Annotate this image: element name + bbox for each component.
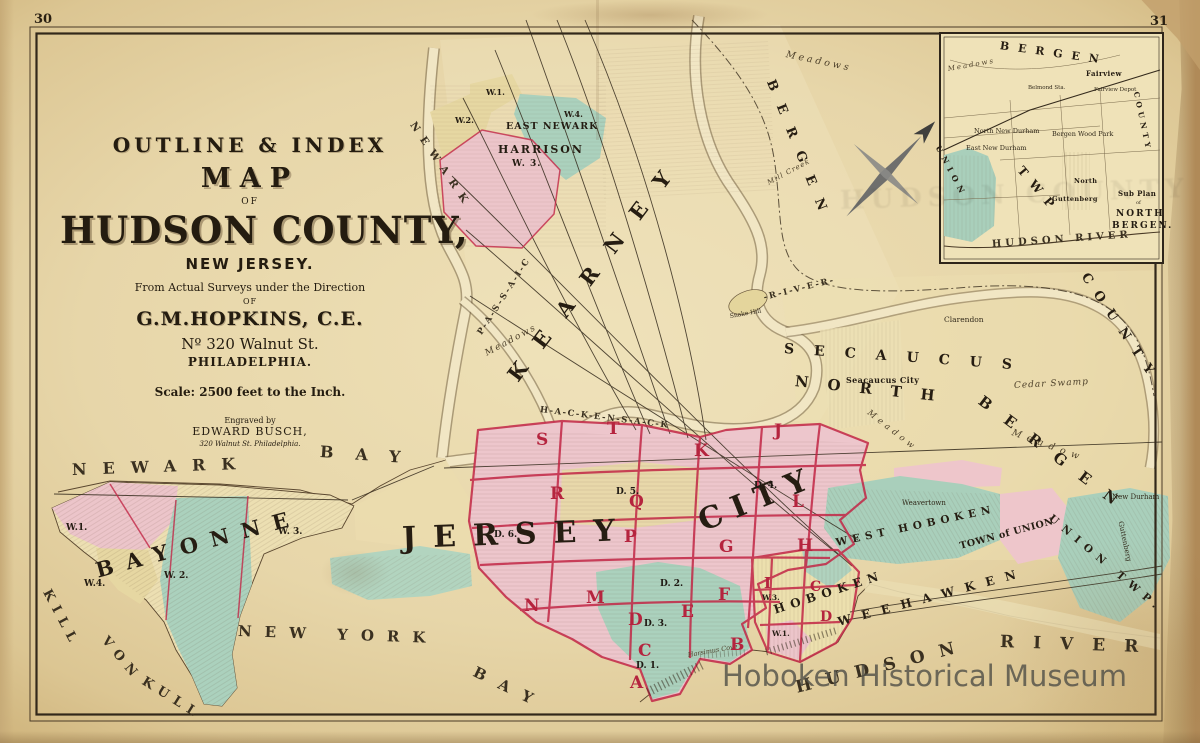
label-snake-hill: Snake Hill xyxy=(729,309,761,320)
label-clarendon: Clarendon xyxy=(944,316,984,324)
inset-meadows: Meadows xyxy=(947,58,995,73)
label-east-newark: EAST NEWARK xyxy=(506,122,598,132)
label-meadows-top: Meadows xyxy=(785,50,852,73)
district-s: S xyxy=(536,432,548,449)
district-j: J xyxy=(774,423,782,440)
label-bayonne-w1: W.1. xyxy=(66,524,87,533)
inset-east-new-durham: East New Durham xyxy=(966,145,1027,152)
label-town-of-union: TOWN of UNION xyxy=(959,517,1055,551)
district-r: R xyxy=(550,486,564,503)
inset-fairview-depot: Fairview Depot xyxy=(1094,88,1136,94)
inset-north-new-durham: North New Durham xyxy=(974,128,1039,135)
map-sheet: 30 31 OUTLINE & INDEX MAP OF HUDSON COUN… xyxy=(0,0,1200,743)
label-new-durham: New Durham xyxy=(1112,494,1159,501)
label-meadow-nb2: Meadow xyxy=(865,409,918,453)
label-bayonne-w4: W.4. xyxy=(84,580,105,589)
district-t: T xyxy=(607,421,620,438)
inset-belmond-sta: Belmond Sta. xyxy=(1028,86,1065,92)
district-d1: D. 1. xyxy=(636,662,659,671)
label-new-york-bay-1: NEW YORK xyxy=(238,624,439,646)
district-g: G xyxy=(719,539,734,556)
label-newark-vert: NEWARK xyxy=(408,120,474,211)
inset-bergen-wood-park: Bergen Wood Park xyxy=(1052,131,1113,138)
district-n: N xyxy=(524,598,540,615)
label-newark-bay-bay: BAY xyxy=(319,444,422,467)
map-labels-layer: NEWARKBAYKILLVONKULLNEW YORKBAYHUDSONRIV… xyxy=(0,0,1200,743)
label-secaucus: SECAUCUS xyxy=(784,342,1033,373)
label-cedar-swamp: Cedar Swamp xyxy=(1014,378,1089,391)
inset-county: COUNTY xyxy=(1132,91,1152,152)
district-hoboken-c: C xyxy=(810,580,821,594)
label-bayonne-w3: W. 3. xyxy=(278,528,302,537)
inset-hudson-river: HUDSON RIVER xyxy=(992,230,1132,250)
district-c: C xyxy=(638,643,652,660)
label-bayonne-w2: W. 2. xyxy=(164,572,188,581)
label-seacaucus-city: Seacaucus City xyxy=(846,376,919,384)
label-kill-von-kull-3: KULL xyxy=(140,675,205,722)
district-m: M xyxy=(586,590,605,607)
district-a: A xyxy=(630,675,643,692)
district-hoboken-d: D xyxy=(820,610,832,624)
label-newark-bay-newark: NEWARK xyxy=(72,456,252,478)
inset-fairview: Fairview xyxy=(1086,70,1122,77)
district-d2: D. 2. xyxy=(660,580,683,589)
district-d6: D. 6. xyxy=(494,531,517,540)
label-bayonne: BAYONNE xyxy=(93,506,303,581)
watermark-text: Hoboken Historical Museum xyxy=(722,659,1127,693)
district-p: P xyxy=(624,529,637,546)
district-l: L xyxy=(792,494,804,511)
label-county-right: COUNTY xyxy=(1079,271,1162,386)
label-river-dash: -R-I-V-E-R- xyxy=(763,276,836,302)
district-f: F xyxy=(718,587,730,604)
district-k: K xyxy=(694,443,709,460)
label-harrison-w2: W.2. xyxy=(455,116,474,124)
district-b: B xyxy=(730,637,744,654)
district-i: I xyxy=(764,576,771,591)
label-hackensack-river: H-A-C-K-E-N-S-A-C-K xyxy=(539,406,669,430)
district-d4: D. 4. xyxy=(754,482,777,491)
label-harrison: HARRISON xyxy=(498,144,584,155)
label-weavertown: Weavertown xyxy=(902,500,946,507)
label-harrison-w1: W.1. xyxy=(486,88,505,96)
label-harrison-w4: W.4. xyxy=(564,110,583,118)
label-new-york-bay-2: BAY xyxy=(471,665,549,713)
label-union-twp: UNION TWP. xyxy=(1047,513,1165,615)
district-h: H xyxy=(797,538,813,555)
district-d: D xyxy=(628,612,643,629)
label-hudson-river-2: RIVER xyxy=(1000,634,1158,656)
district-e: E xyxy=(681,604,694,621)
district-d3: D. 3. xyxy=(644,620,667,629)
label-bergen-county-top: BERGEN xyxy=(764,78,834,226)
label-guttenberg-main: Guttenberg xyxy=(1117,521,1132,562)
inset-north-bergen-1: NORTH xyxy=(1116,210,1165,219)
label-passaic-river: P-A-S-S-A-I-C xyxy=(476,257,532,337)
district-d5: D. 5. xyxy=(616,488,639,497)
label-hoboken-w3: W.3. xyxy=(762,594,780,602)
label-kill-von-kull-1: KILL xyxy=(40,587,81,649)
label-kearney: KEARNEY xyxy=(504,149,689,385)
inset-bergen: BERGEN xyxy=(999,40,1108,66)
label-kill-von-kull-2: VON xyxy=(99,634,144,684)
label-harrison-w3: W. 3. xyxy=(512,160,541,169)
label-hoboken-w1: W.1. xyxy=(772,630,790,638)
